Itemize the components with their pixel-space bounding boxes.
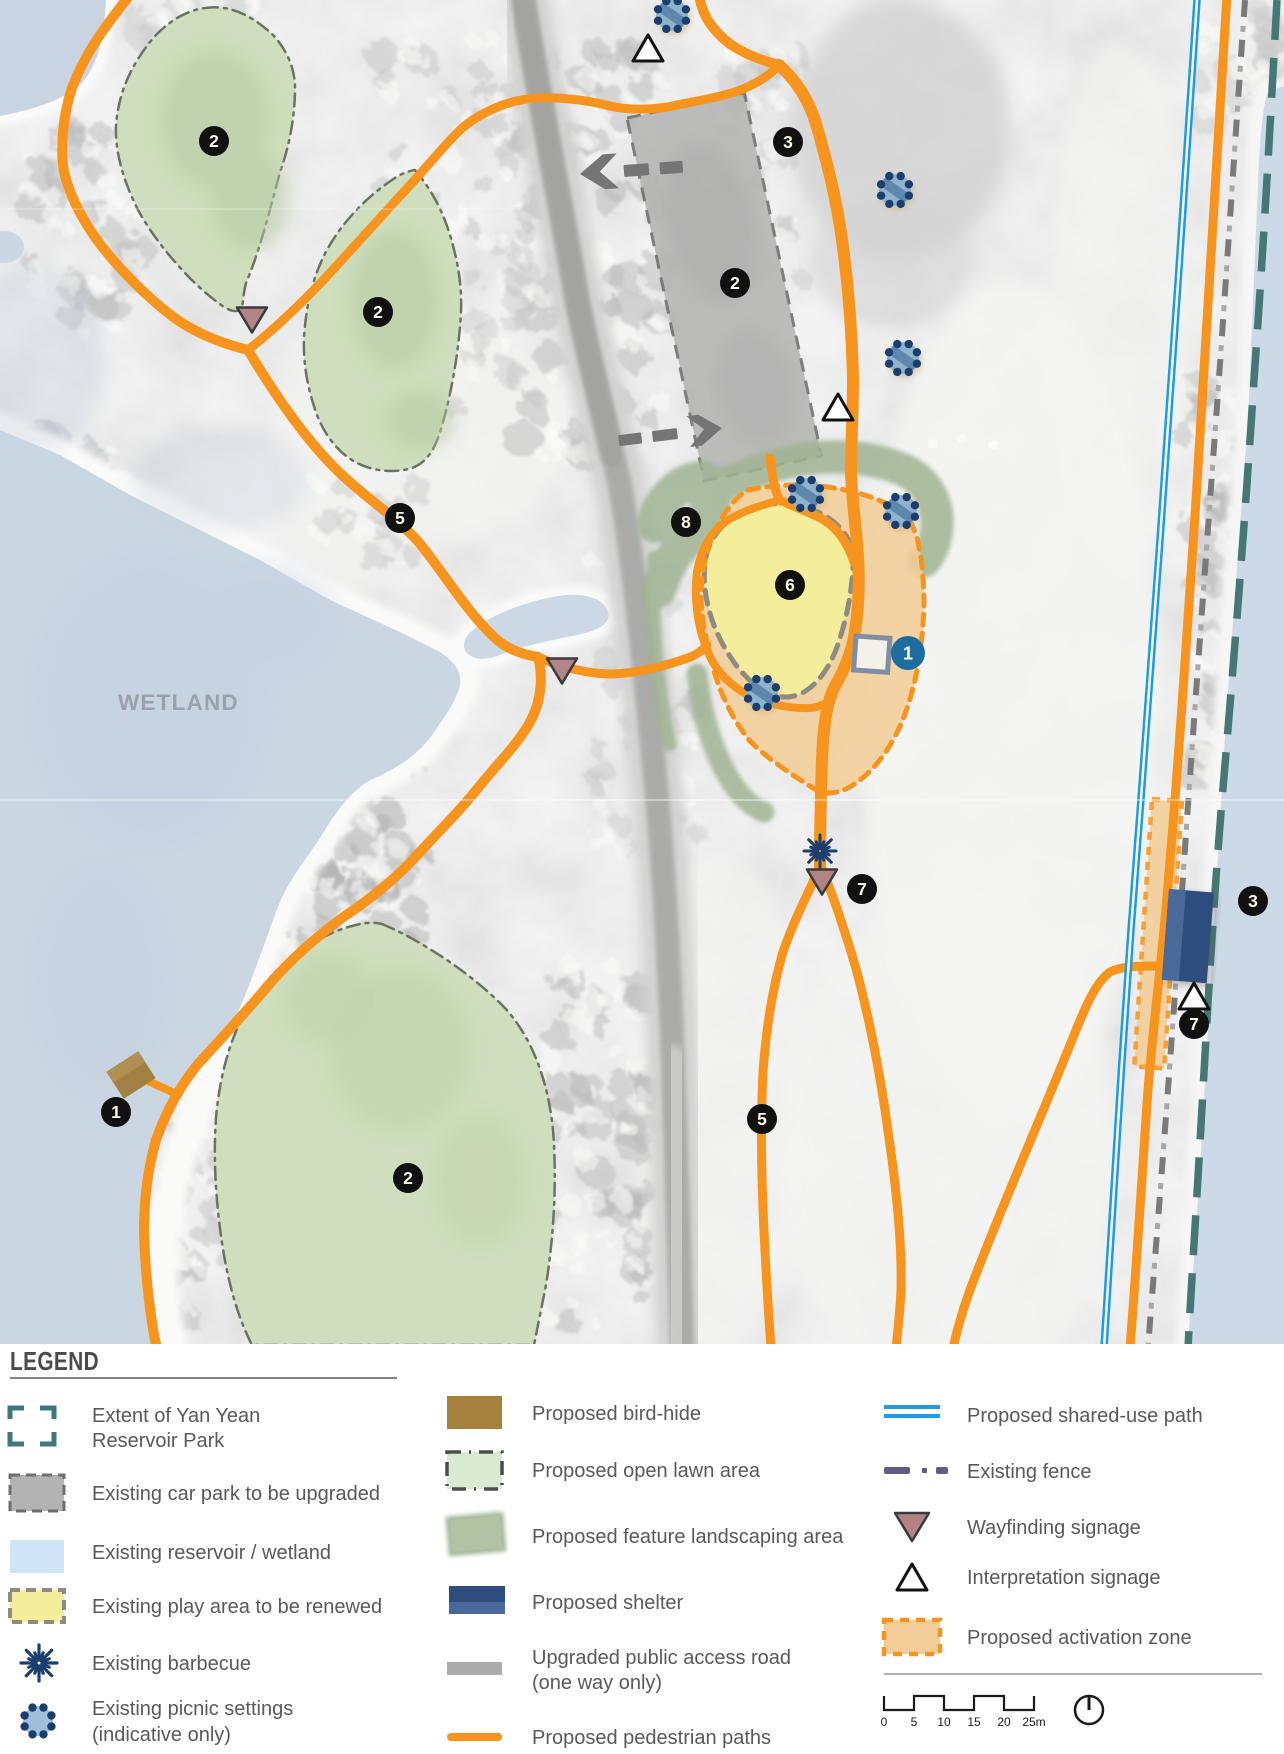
svg-text:5: 5 bbox=[757, 1109, 767, 1129]
svg-text:Proposed feature landscaping a: Proposed feature landscaping area bbox=[532, 1526, 844, 1548]
svg-text:Interpretation signage: Interpretation signage bbox=[967, 1567, 1160, 1589]
svg-text:15: 15 bbox=[967, 1715, 981, 1729]
svg-text:2: 2 bbox=[209, 131, 219, 151]
svg-text:Reservoir Park: Reservoir Park bbox=[92, 1430, 225, 1452]
svg-text:7: 7 bbox=[1189, 1014, 1199, 1034]
svg-text:7: 7 bbox=[857, 879, 867, 899]
svg-text:5: 5 bbox=[911, 1715, 918, 1729]
svg-text:Existing fence: Existing fence bbox=[967, 1461, 1092, 1483]
svg-text:Proposed pedestrian paths: Proposed pedestrian paths bbox=[532, 1727, 771, 1749]
svg-text:Existing reservoir / wetland: Existing reservoir / wetland bbox=[92, 1542, 331, 1564]
svg-text:Proposed shared-use path: Proposed shared-use path bbox=[967, 1405, 1203, 1427]
svg-text:Upgraded public access road: Upgraded public access road bbox=[532, 1647, 791, 1669]
svg-text:Existing play area to be renew: Existing play area to be renewed bbox=[92, 1596, 382, 1618]
svg-text:Existing barbecue: Existing barbecue bbox=[92, 1653, 251, 1675]
svg-text:LEGEND: LEGEND bbox=[10, 1347, 99, 1376]
svg-text:25m: 25m bbox=[1022, 1715, 1045, 1729]
svg-text:3: 3 bbox=[1248, 891, 1258, 911]
svg-text:1: 1 bbox=[111, 1102, 121, 1122]
svg-text:20: 20 bbox=[997, 1715, 1011, 1729]
svg-text:Existing picnic settings: Existing picnic settings bbox=[92, 1698, 293, 1720]
svg-text:2: 2 bbox=[373, 302, 383, 322]
svg-text:(indicative only): (indicative only) bbox=[92, 1724, 231, 1746]
svg-text:WETLAND: WETLAND bbox=[118, 690, 239, 715]
svg-text:Proposed bird-hide: Proposed bird-hide bbox=[532, 1403, 701, 1425]
svg-text:1: 1 bbox=[903, 644, 913, 664]
svg-text:2: 2 bbox=[403, 1168, 413, 1188]
svg-text:(one way only): (one way only) bbox=[532, 1672, 662, 1694]
svg-text:3: 3 bbox=[783, 132, 793, 152]
svg-text:Proposed activation zone: Proposed activation zone bbox=[967, 1627, 1192, 1649]
svg-text:Proposed open lawn area: Proposed open lawn area bbox=[532, 1460, 761, 1482]
svg-text:Proposed shelter: Proposed shelter bbox=[532, 1592, 684, 1614]
svg-text:10: 10 bbox=[937, 1715, 951, 1729]
svg-text:Extent of Yan Yean: Extent of Yan Yean bbox=[92, 1405, 260, 1427]
svg-text:Existing car park to be upgrad: Existing car park to be upgraded bbox=[92, 1483, 380, 1505]
svg-text:8: 8 bbox=[681, 512, 691, 532]
svg-text:2: 2 bbox=[730, 273, 740, 293]
svg-text:5: 5 bbox=[395, 508, 405, 528]
svg-text:0: 0 bbox=[881, 1715, 888, 1729]
svg-text:6: 6 bbox=[785, 575, 795, 595]
svg-text:Wayfinding signage: Wayfinding signage bbox=[967, 1517, 1141, 1539]
